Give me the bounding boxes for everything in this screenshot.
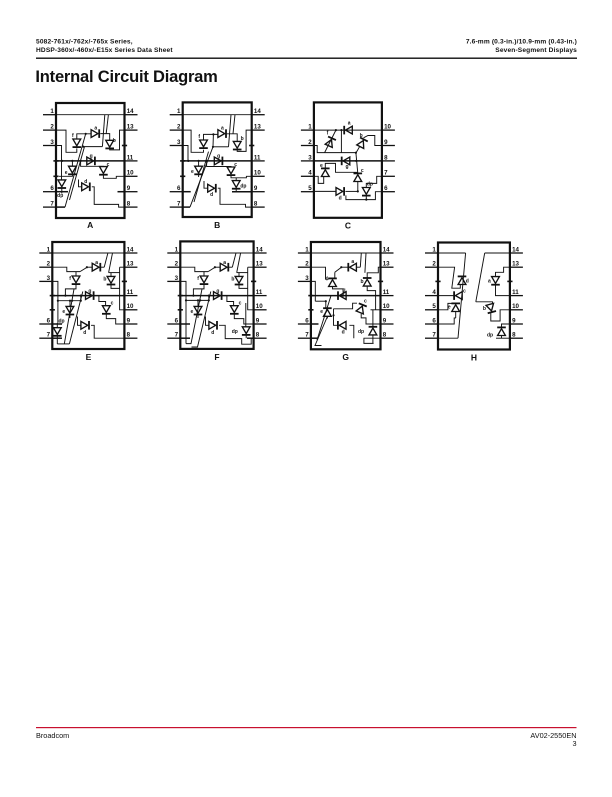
svg-text:Seven-Segment Displays: Seven-Segment Displays [495,47,577,54]
svg-text:5082-761x/-762x/-765x Series,: 5082-761x/-762x/-765x Series, [36,38,133,45]
svg-text:6: 6 [432,317,436,324]
svg-text:e: e [448,305,451,311]
svg-text:c: c [111,301,114,307]
svg-text:8: 8 [384,154,388,161]
svg-text:Broadcom: Broadcom [36,731,69,740]
svg-text:10: 10 [512,303,519,310]
svg-text:d: d [211,330,214,336]
svg-text:14: 14 [127,108,134,115]
svg-text:8: 8 [383,332,387,339]
svg-text:2: 2 [175,261,179,268]
svg-text:e: e [320,163,323,169]
svg-text:7: 7 [175,332,179,339]
svg-text:4: 4 [432,289,436,296]
svg-text:9: 9 [127,317,131,324]
svg-text:7.6-mm (0.3-in.)/10.9-mm (0.43: 7.6-mm (0.3-in.)/10.9-mm (0.43-in.) [466,38,577,45]
svg-text:11: 11 [256,289,263,296]
svg-text:10: 10 [127,170,134,177]
svg-text:dp: dp [58,319,64,325]
svg-text:2: 2 [177,124,181,131]
svg-text:13: 13 [512,261,519,268]
svg-text:14: 14 [383,246,390,253]
svg-text:6: 6 [47,317,51,324]
svg-text:c: c [364,299,367,305]
svg-text:d: d [84,179,87,185]
svg-text:3: 3 [308,154,312,161]
svg-text:H: H [471,352,477,362]
svg-text:HDSP-360x/-460x/-E15x Series D: HDSP-360x/-460x/-E15x Series Data Sheet [36,47,173,54]
svg-text:b: b [113,138,116,144]
svg-text:dp: dp [367,181,373,187]
svg-text:a: a [95,260,98,266]
svg-text:A: A [87,220,93,230]
svg-text:b: b [360,279,363,285]
svg-text:13: 13 [256,261,263,268]
svg-text:8: 8 [256,332,260,339]
svg-text:7: 7 [47,332,51,339]
svg-text:1: 1 [177,108,181,115]
svg-text:3: 3 [175,275,179,282]
svg-text:2: 2 [305,261,309,268]
svg-text:3: 3 [572,739,576,748]
svg-text:13: 13 [383,261,390,268]
svg-text:8: 8 [127,332,131,339]
svg-text:3: 3 [50,139,54,146]
svg-text:g: g [345,164,348,170]
svg-text:a: a [351,259,354,265]
svg-text:2: 2 [432,261,436,268]
svg-text:14: 14 [512,246,519,253]
svg-text:13: 13 [127,261,134,268]
svg-text:C: C [345,221,351,231]
svg-text:3: 3 [177,139,181,146]
svg-text:g: g [217,154,220,160]
svg-text:c: c [234,162,237,168]
svg-text:10: 10 [256,303,263,310]
svg-text:11: 11 [254,154,261,161]
svg-text:dp: dp [487,333,493,339]
svg-text:11: 11 [127,289,134,296]
svg-text:a: a [348,121,351,127]
svg-text:14: 14 [127,246,134,253]
svg-text:c: c [361,168,364,174]
svg-text:2: 2 [50,124,54,131]
svg-text:a: a [488,279,491,285]
svg-text:8: 8 [254,201,258,208]
svg-text:1: 1 [432,246,436,253]
svg-text:8: 8 [127,201,131,208]
svg-text:c: c [463,289,466,295]
svg-text:d: d [210,192,213,198]
svg-text:11: 11 [383,289,390,296]
svg-text:5: 5 [308,185,312,192]
svg-text:1: 1 [50,108,54,115]
svg-text:3: 3 [47,275,51,282]
svg-text:E: E [86,352,92,362]
svg-text:a: a [221,125,224,131]
svg-text:Internal Circuit Diagram: Internal Circuit Diagram [35,68,217,86]
svg-text:b: b [483,306,486,312]
svg-text:7: 7 [384,170,388,177]
svg-text:6: 6 [305,317,309,324]
svg-text:14: 14 [256,246,263,253]
svg-text:1: 1 [47,246,51,253]
svg-text:9: 9 [127,185,131,192]
svg-text:9: 9 [384,139,388,146]
svg-text:11: 11 [127,154,134,161]
svg-text:1: 1 [305,246,309,253]
svg-text:b: b [103,277,106,283]
svg-text:7: 7 [432,332,436,339]
svg-text:13: 13 [254,124,261,131]
svg-text:5: 5 [432,303,436,310]
svg-text:G: G [342,352,349,362]
svg-text:14: 14 [254,108,261,115]
svg-text:e: e [320,309,323,315]
svg-text:9: 9 [383,317,387,324]
svg-text:10: 10 [127,303,134,310]
svg-text:a: a [223,260,226,266]
svg-text:b: b [231,277,234,283]
svg-text:e: e [65,170,68,176]
svg-text:g: g [90,154,93,160]
svg-text:e: e [191,309,194,315]
svg-text:9: 9 [254,185,258,192]
svg-text:e: e [191,169,194,175]
svg-text:2: 2 [308,139,312,146]
svg-text:9: 9 [256,317,260,324]
svg-text:d: d [339,196,342,202]
svg-text:d: d [342,330,345,336]
svg-text:10: 10 [254,170,261,177]
svg-text:dp: dp [358,329,364,335]
svg-text:dp: dp [240,183,246,189]
svg-text:6: 6 [50,185,54,192]
svg-text:1: 1 [175,246,179,253]
svg-text:7: 7 [305,332,309,339]
svg-text:c: c [239,301,242,307]
svg-text:a: a [94,125,97,131]
svg-text:b: b [360,133,363,139]
svg-text:d: d [83,330,86,336]
svg-text:6: 6 [175,317,179,324]
svg-text:B: B [214,220,220,230]
svg-text:13: 13 [127,124,134,131]
svg-text:4: 4 [308,170,312,177]
svg-text:g: g [88,289,91,295]
svg-text:g: g [216,289,219,295]
svg-text:1: 1 [308,124,312,131]
svg-text:9: 9 [512,317,516,324]
svg-text:6: 6 [177,185,181,192]
svg-text:7: 7 [50,201,54,208]
svg-text:dp: dp [57,193,63,199]
svg-text:e: e [62,309,65,315]
svg-text:8: 8 [512,332,516,339]
svg-text:10: 10 [384,124,391,131]
svg-text:d: d [466,279,469,285]
svg-text:10: 10 [383,303,390,310]
svg-text:b: b [241,136,244,142]
svg-text:AV02-2550EN: AV02-2550EN [530,731,576,740]
svg-text:6: 6 [384,185,388,192]
svg-text:11: 11 [512,289,519,296]
svg-text:7: 7 [177,201,181,208]
svg-text:dp: dp [232,329,238,335]
svg-text:g: g [342,288,345,294]
svg-text:2: 2 [47,261,51,268]
svg-text:3: 3 [305,275,309,282]
svg-text:F: F [214,352,219,362]
svg-text:c: c [107,162,110,168]
